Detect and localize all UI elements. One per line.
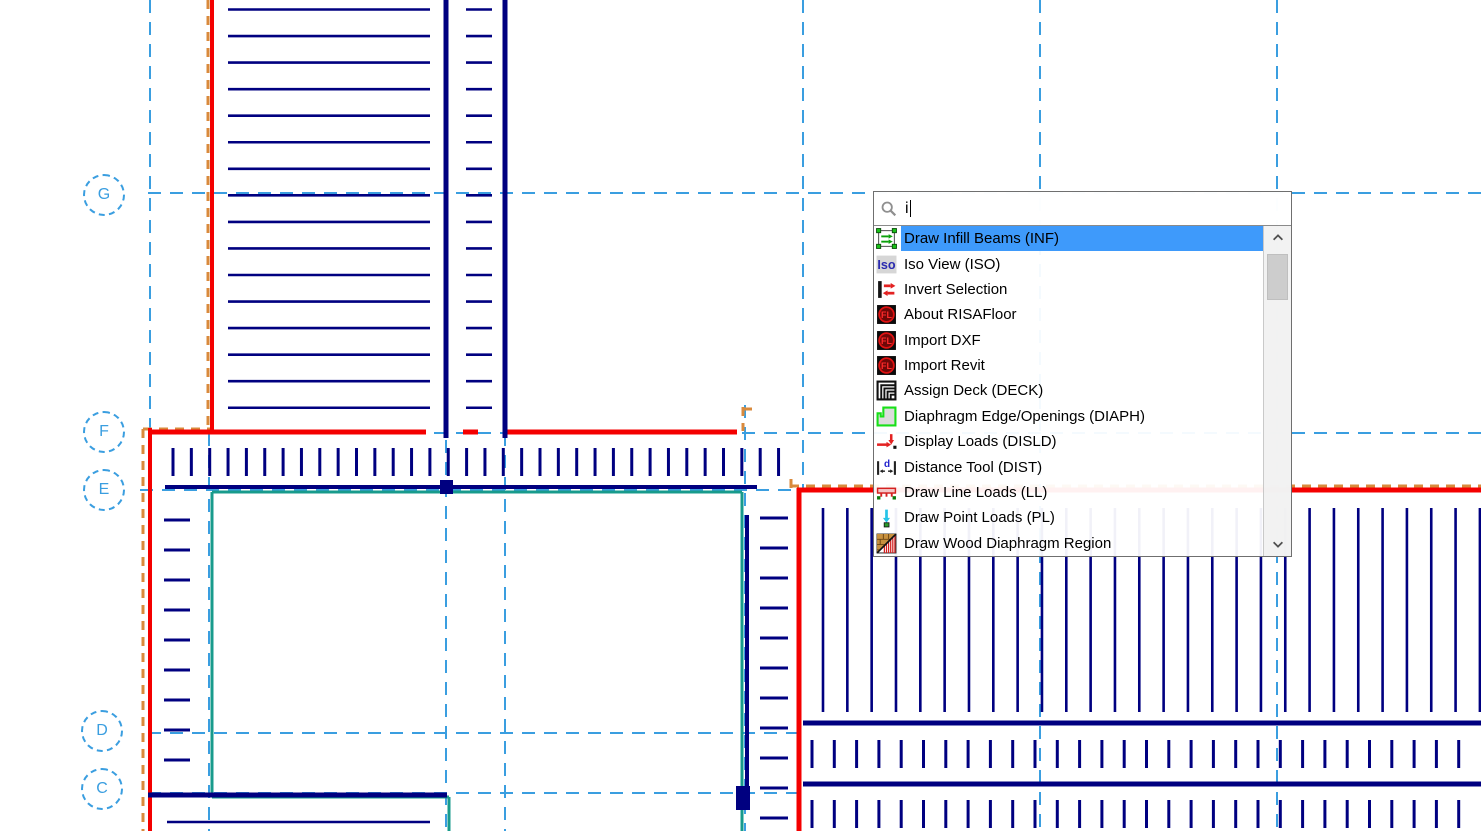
scrollbar-thumb[interactable] — [1267, 254, 1288, 300]
command-search-input[interactable]: i — [874, 192, 1291, 226]
svg-text:FL: FL — [881, 361, 892, 371]
command-item[interactable]: FLAbout RISAFloor — [874, 302, 1263, 327]
grid-bubble-G: G — [83, 174, 125, 216]
command-item-label: Iso View (ISO) — [901, 251, 1263, 276]
command-item-label: Diaphragm Edge/Openings (DIAPH) — [901, 404, 1263, 429]
svg-text:d: d — [884, 459, 890, 470]
command-item[interactable]: Display Loads (DISLD) — [874, 429, 1263, 454]
command-palette-popup: i Draw Infill Beams (INF)IsoIso View (IS… — [873, 191, 1292, 557]
grid-bubble-E: E — [83, 469, 125, 511]
point-loads-icon — [876, 507, 897, 528]
command-item[interactable]: dDistance Tool (DIST) — [874, 454, 1263, 479]
search-text: i — [905, 200, 909, 218]
scrollbar[interactable] — [1263, 226, 1291, 556]
display-loads-icon — [876, 431, 897, 452]
invert-selection-icon — [876, 279, 897, 300]
command-item-label: Draw Infill Beams (INF) — [901, 226, 1263, 251]
svg-text:FL: FL — [881, 310, 892, 320]
grid-bubble-C: C — [81, 768, 123, 810]
command-item[interactable]: Invert Selection — [874, 277, 1263, 302]
search-icon — [880, 200, 898, 218]
command-item[interactable]: Diaphragm Edge/Openings (DIAPH) — [874, 404, 1263, 429]
command-item[interactable]: IsoIso View (ISO) — [874, 251, 1263, 276]
command-item[interactable]: Assign Deck (DECK) — [874, 378, 1263, 403]
diaphragm-edge-icon — [876, 406, 897, 427]
command-item-label: Import DXF — [901, 328, 1263, 353]
scroll-up-button[interactable] — [1264, 226, 1291, 250]
scroll-down-button[interactable] — [1264, 532, 1291, 556]
command-item-label: About RISAFloor — [901, 302, 1263, 327]
command-item-label: Assign Deck (DECK) — [901, 378, 1263, 403]
command-item[interactable]: Draw Line Loads (LL) — [874, 480, 1263, 505]
infill-beams-icon — [876, 228, 897, 249]
command-item-label: Invert Selection — [901, 277, 1263, 302]
command-item[interactable]: FLImport DXF — [874, 328, 1263, 353]
svg-text:Iso: Iso — [877, 258, 896, 272]
grid-bubble-D: D — [81, 710, 123, 752]
wood-diaphragm-icon — [876, 533, 897, 554]
command-item-label: Distance Tool (DIST) — [901, 454, 1263, 479]
command-item[interactable]: FLImport Revit — [874, 353, 1263, 378]
command-list: Draw Infill Beams (INF)IsoIso View (ISO)… — [874, 226, 1291, 556]
command-item[interactable]: Draw Point Loads (PL) — [874, 505, 1263, 530]
risa-logo-icon: FL — [876, 304, 897, 325]
line-loads-icon — [876, 482, 897, 503]
command-item-label: Import Revit — [901, 353, 1263, 378]
command-item-label: Draw Line Loads (LL) — [901, 480, 1263, 505]
command-item[interactable]: Draw Wood Diaphragm Region — [874, 531, 1263, 556]
risa-logo-icon: FL — [876, 330, 897, 351]
floor-plan-canvas[interactable]: GFEDC i Draw Infill Beams (INF)IsoIso Vi… — [0, 0, 1481, 831]
iso-view-icon: Iso — [876, 254, 897, 275]
text-cursor — [910, 200, 911, 217]
command-item-label: Display Loads (DISLD) — [901, 429, 1263, 454]
command-item-label: Draw Point Loads (PL) — [901, 505, 1263, 530]
grid-bubble-F: F — [83, 411, 125, 453]
risa-logo-icon: FL — [876, 355, 897, 376]
svg-text:FL: FL — [881, 336, 892, 346]
assign-deck-icon — [876, 380, 897, 401]
command-item[interactable]: Draw Infill Beams (INF) — [874, 226, 1263, 251]
distance-tool-icon: d — [876, 457, 897, 478]
command-item-label: Draw Wood Diaphragm Region — [901, 531, 1263, 556]
